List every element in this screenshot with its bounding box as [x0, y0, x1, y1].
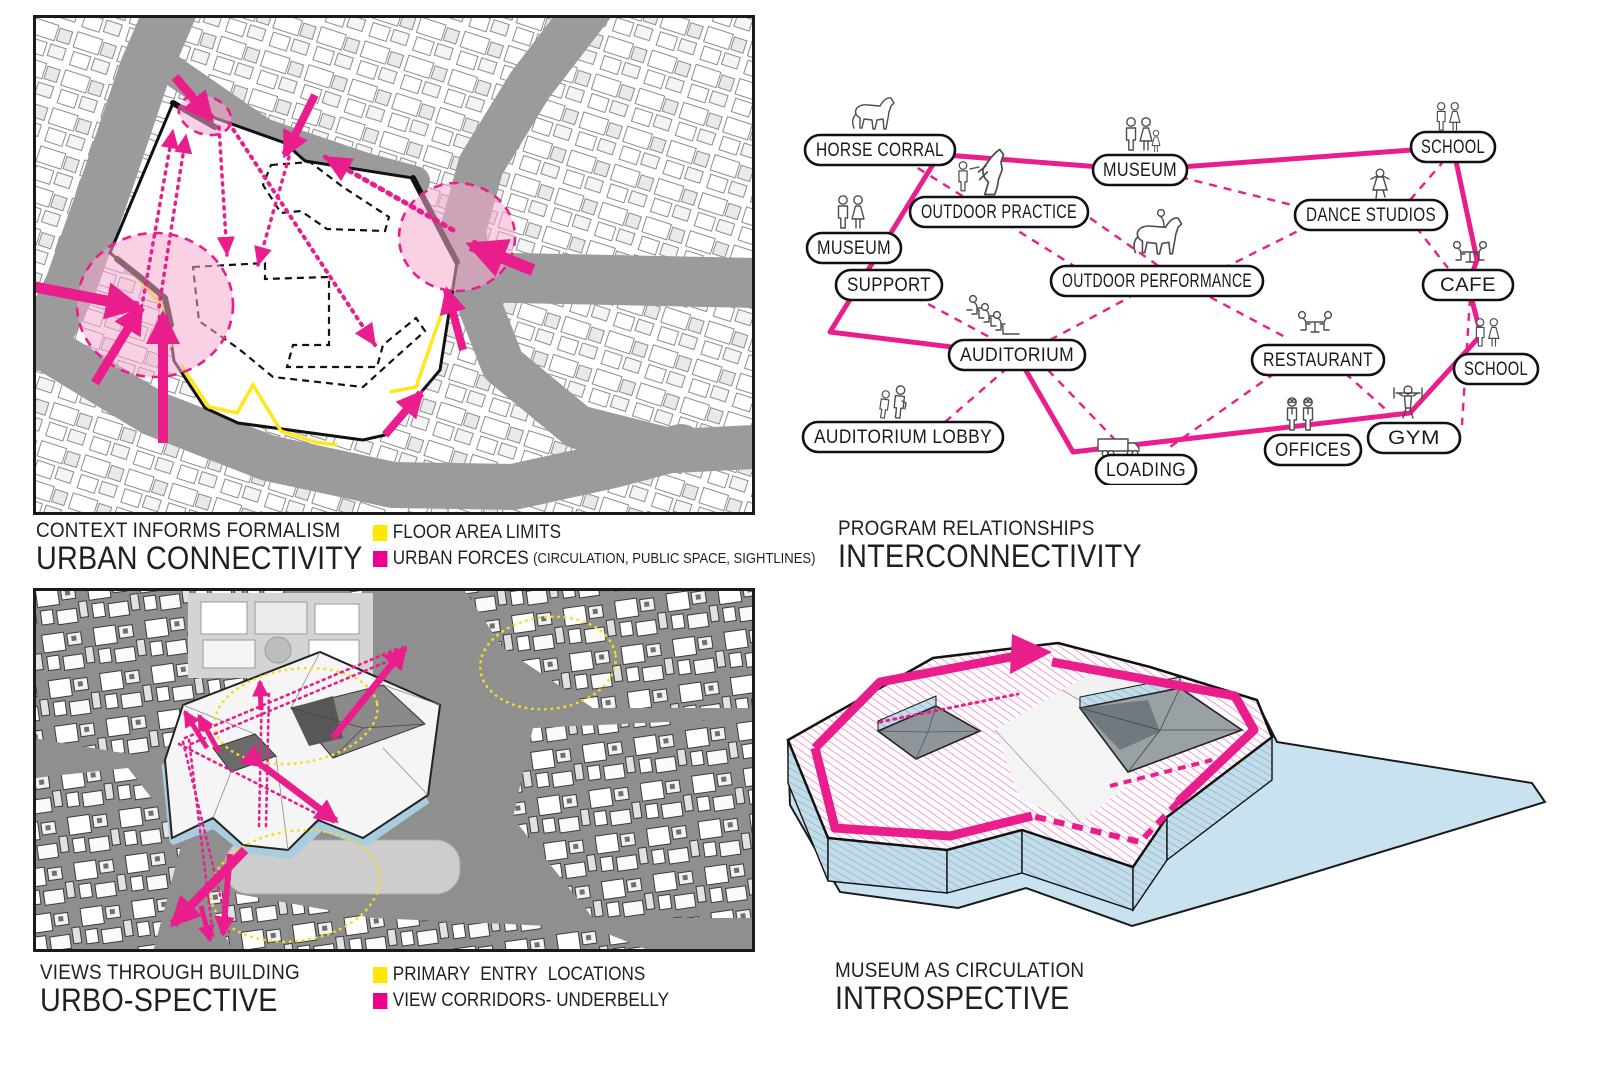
legend-label: VIEW CORRIDORS- UNDERBELLY [393, 990, 669, 1012]
dancer-icon [1371, 169, 1389, 199]
yellow-swatch-icon [373, 525, 387, 541]
node-gym: GYM [1368, 423, 1460, 453]
program-relationship-diagram: HORSE CORRAL OUTDOOR PRACTICE MUSEUM SUP… [780, 85, 1550, 485]
svg-text:DANCE STUDIOS: DANCE STUDIOS [1306, 205, 1436, 226]
svg-text:AUDITORIUM: AUDITORIUM [960, 345, 1074, 366]
caption-line1: VIEWS THROUGH BUILDING [40, 962, 300, 984]
introspective-axon [780, 590, 1550, 930]
interconnectivity-caption: PROGRAM RELATIONSHIPS INTERCONNECTIVITY [838, 518, 1142, 573]
urbo-spective-legend: PRIMARY ENTRY LOCATIONS VIEW CORRIDORS- … [373, 963, 669, 1015]
urban-connectivity-legend: FLOOR AREA LIMITS URBAN FORCES (CIRCULAT… [373, 521, 815, 573]
node-offices: OFFICES [1265, 435, 1361, 465]
node-school-east: SCHOOL [1454, 354, 1538, 384]
legend-row-view-corridors: VIEW CORRIDORS- UNDERBELLY [373, 989, 669, 1013]
caption-line1: PROGRAM RELATIONSHIPS [838, 518, 1142, 540]
visitor-couple-icon [839, 196, 865, 228]
node-restaurant: RESTAURANT [1252, 345, 1384, 375]
urbo-spective-caption: VIEWS THROUGH BUILDING URBO-SPECTIVE [40, 962, 300, 1017]
svg-text:HORSE CORRAL: HORSE CORRAL [816, 140, 944, 161]
svg-text:MUSEUM: MUSEUM [1103, 160, 1177, 181]
node-dance-studios: DANCE STUDIOS [1295, 200, 1447, 230]
svg-text:OUTDOOR PERFORMANCE: OUTDOOR PERFORMANCE [1062, 271, 1252, 292]
svg-text:OUTDOOR PRACTICE: OUTDOOR PRACTICE [921, 202, 1077, 223]
cafe-table-icon [1454, 242, 1487, 262]
node-museum-north: MUSEUM [1093, 155, 1187, 185]
caption-line2: INTERCONNECTIVITY [838, 540, 1142, 573]
urbo-spective-aerial [33, 588, 755, 952]
legend-label: FLOOR AREA LIMITS [393, 522, 561, 544]
introspective-caption: MUSEUM AS CIRCULATION INTROSPECTIVE [835, 960, 1084, 1015]
node-auditorium: AUDITORIUM [949, 340, 1085, 370]
legend-row-floor-area: FLOOR AREA LIMITS [373, 521, 815, 545]
caption-line2: INTROSPECTIVE [835, 982, 1084, 1015]
node-school-north: SCHOOL [1411, 132, 1495, 162]
svg-text:GYM: GYM [1388, 428, 1440, 449]
magenta-swatch-icon [373, 993, 387, 1009]
horse-icon [853, 98, 894, 129]
horse-rider-icon [1134, 210, 1182, 254]
node-cafe: CAFE [1423, 270, 1513, 300]
svg-text:SUPPORT: SUPPORT [847, 275, 931, 296]
node-outdoor-practice: OUTDOOR PRACTICE [910, 197, 1088, 227]
concept-board: CONTEXT INFORMS FORMALISM URBAN CONNECTI… [0, 0, 1600, 1072]
legend-label: URBAN FORCES [393, 548, 529, 570]
svg-text:CAFE: CAFE [1440, 275, 1496, 296]
caption-line1: MUSEUM AS CIRCULATION [835, 960, 1084, 982]
program-nodes: HORSE CORRAL OUTDOOR PRACTICE MUSEUM SUP… [803, 132, 1538, 485]
caption-line2: URBO-SPECTIVE [40, 984, 300, 1017]
legend-row-primary-entry: PRIMARY ENTRY LOCATIONS [373, 963, 669, 987]
legend-row-urban-forces: URBAN FORCES (CIRCULATION, PUBLIC SPACE,… [373, 547, 815, 571]
children-icon [1476, 319, 1499, 346]
caption-line1: CONTEXT INFORMS FORMALISM [36, 520, 362, 542]
legend-note: (CIRCULATION, PUBLIC SPACE, SIGHTLINES) [533, 551, 815, 567]
node-museum-west: MUSEUM [807, 233, 901, 263]
urban-connectivity-map [33, 15, 755, 515]
svg-text:SCHOOL: SCHOOL [1421, 137, 1485, 158]
children-icon [1437, 103, 1460, 130]
node-support: SUPPORT [836, 270, 942, 300]
node-horse-corral: HORSE CORRAL [805, 135, 955, 165]
svg-text:AUDITORIUM LOBBY: AUDITORIUM LOBBY [814, 427, 992, 448]
node-auditorium-lobby: AUDITORIUM LOBBY [803, 422, 1003, 452]
yellow-swatch-icon [373, 967, 387, 983]
dining-table-icon [1299, 312, 1332, 332]
svg-text:OFFICES: OFFICES [1275, 440, 1351, 461]
caption-line2: URBAN CONNECTIVITY [36, 542, 362, 575]
visitor-family-icon [1127, 118, 1160, 152]
walking-visitors-icon [879, 385, 906, 418]
node-loading: LOADING [1096, 455, 1196, 485]
node-outdoor-performance: OUTDOOR PERFORMANCE [1051, 266, 1263, 296]
svg-text:MUSEUM: MUSEUM [817, 238, 891, 259]
svg-text:LOADING: LOADING [1106, 460, 1186, 481]
urban-connectivity-caption: CONTEXT INFORMS FORMALISM URBAN CONNECTI… [36, 520, 362, 575]
svg-text:RESTAURANT: RESTAURANT [1263, 350, 1373, 371]
legend-label: PRIMARY ENTRY LOCATIONS [393, 964, 645, 986]
magenta-swatch-icon [373, 551, 387, 567]
svg-text:SCHOOL: SCHOOL [1464, 359, 1528, 380]
